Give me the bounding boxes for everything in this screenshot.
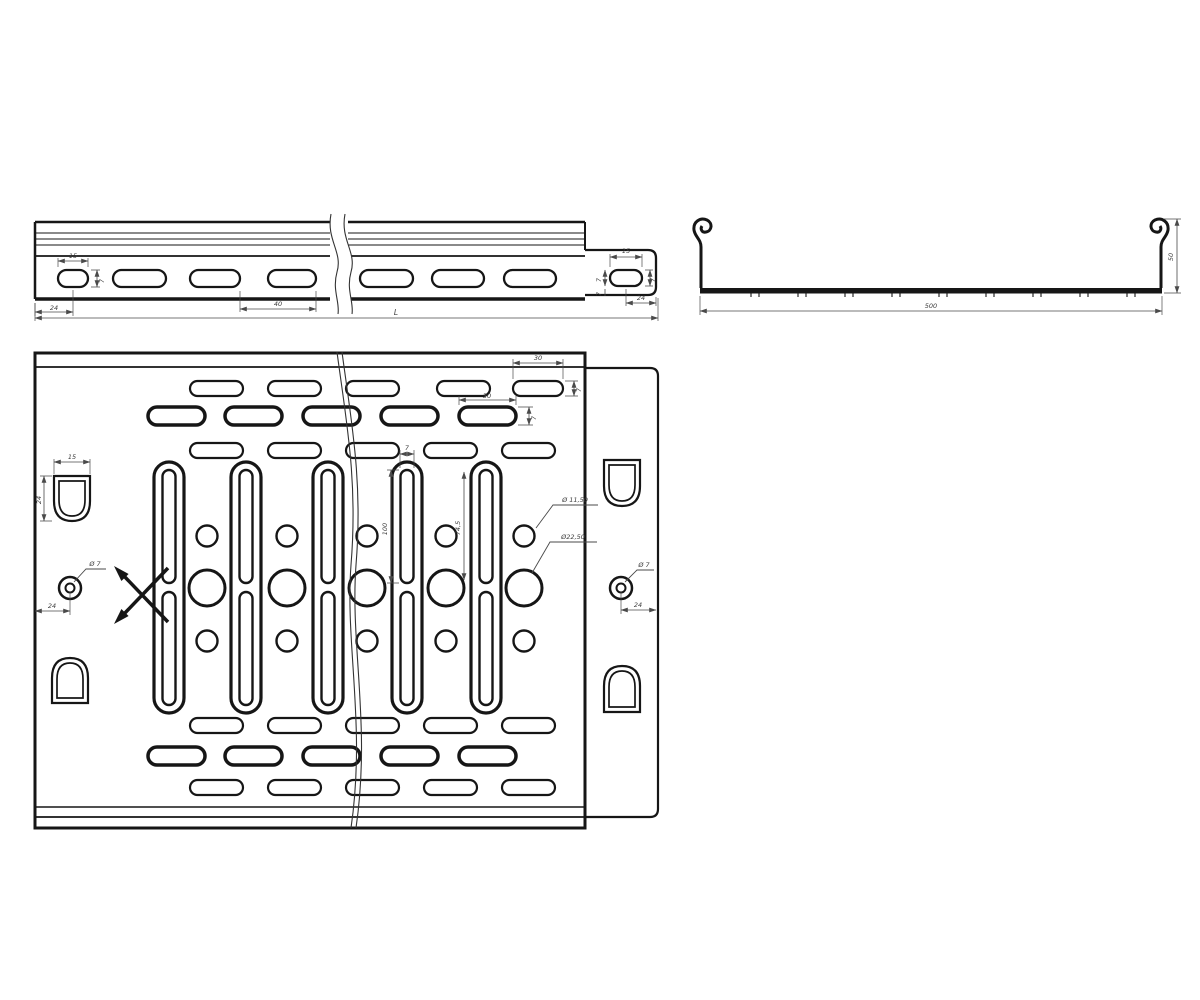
dim-side-edge-offset: 24 bbox=[50, 304, 58, 312]
dim-tab-edge-offset: 24 bbox=[637, 294, 645, 302]
dim-left-hole-offset: 24 bbox=[48, 602, 56, 610]
side-slot bbox=[113, 270, 166, 287]
dim-tab-web-upper: 7 bbox=[595, 277, 603, 282]
section-bottom-plate bbox=[700, 288, 1162, 294]
break-gap bbox=[330, 214, 352, 314]
technical-drawing: 15 7 24 40 L 15 7 7 7 24 500 bbox=[0, 0, 1200, 1000]
rolled-edge-lines bbox=[35, 233, 585, 245]
dim-cutout-height: 24 bbox=[35, 496, 43, 504]
plan-slot-row-bottom-2 bbox=[148, 747, 516, 765]
end-d-cutout-bottom-inner bbox=[609, 671, 635, 707]
dim-section-width: 500 bbox=[925, 302, 937, 310]
end-d-cutout-top-inner bbox=[609, 465, 635, 501]
section-slot-notches bbox=[751, 293, 1135, 297]
dim-section-height: 50 bbox=[1167, 253, 1175, 261]
drawing-page: 15 7 24 40 L 15 7 7 7 24 500 bbox=[0, 0, 1200, 1000]
dim-vslot-length: 100 bbox=[381, 523, 389, 535]
dim-side-slot-height: 7 bbox=[98, 278, 106, 283]
side-slot bbox=[58, 270, 88, 287]
dim-right-hole-dia: Ø 7 bbox=[637, 561, 650, 569]
plan-view: 30 7 30 7 7 100 74,5 Ø 11,50 Ø22,50 15 2… bbox=[35, 352, 658, 828]
dim-side-slot-width: 15 bbox=[69, 252, 77, 260]
dim-cutout-width: 15 bbox=[68, 453, 76, 461]
dim-row2-slot-width: 30 bbox=[483, 392, 491, 400]
side-slot bbox=[268, 270, 316, 287]
dim-total-length: L bbox=[394, 308, 398, 317]
dim-slot-pitch: 40 bbox=[274, 300, 282, 308]
cross-section-view: 500 50 bbox=[694, 219, 1181, 315]
dim-row1-slot-width: 30 bbox=[534, 354, 542, 362]
side-slot bbox=[504, 270, 556, 287]
side-slot bbox=[190, 270, 240, 287]
side-elevation-view: 15 7 24 40 L 15 7 7 7 24 bbox=[35, 214, 658, 321]
dim-small-hole-dia: Ø 11,50 bbox=[561, 496, 588, 504]
tab-slot bbox=[610, 270, 642, 286]
dim-tab-slot-width: 15 bbox=[622, 247, 630, 255]
section-left-wall-hook bbox=[694, 219, 711, 288]
dim-right-hole-offset: 24 bbox=[634, 601, 642, 609]
side-slot bbox=[360, 270, 413, 287]
plan-slot-row-top-2 bbox=[148, 407, 516, 425]
side-slot bbox=[432, 270, 484, 287]
section-right-wall-hook bbox=[1151, 219, 1168, 288]
dim-large-hole-dia: Ø22,50 bbox=[560, 533, 585, 541]
dim-tab-web-lower: 7 bbox=[595, 291, 603, 296]
dim-left-hole-dia: Ø 7 bbox=[88, 560, 101, 568]
dim-vslot-spacing: 74,5 bbox=[454, 521, 462, 535]
